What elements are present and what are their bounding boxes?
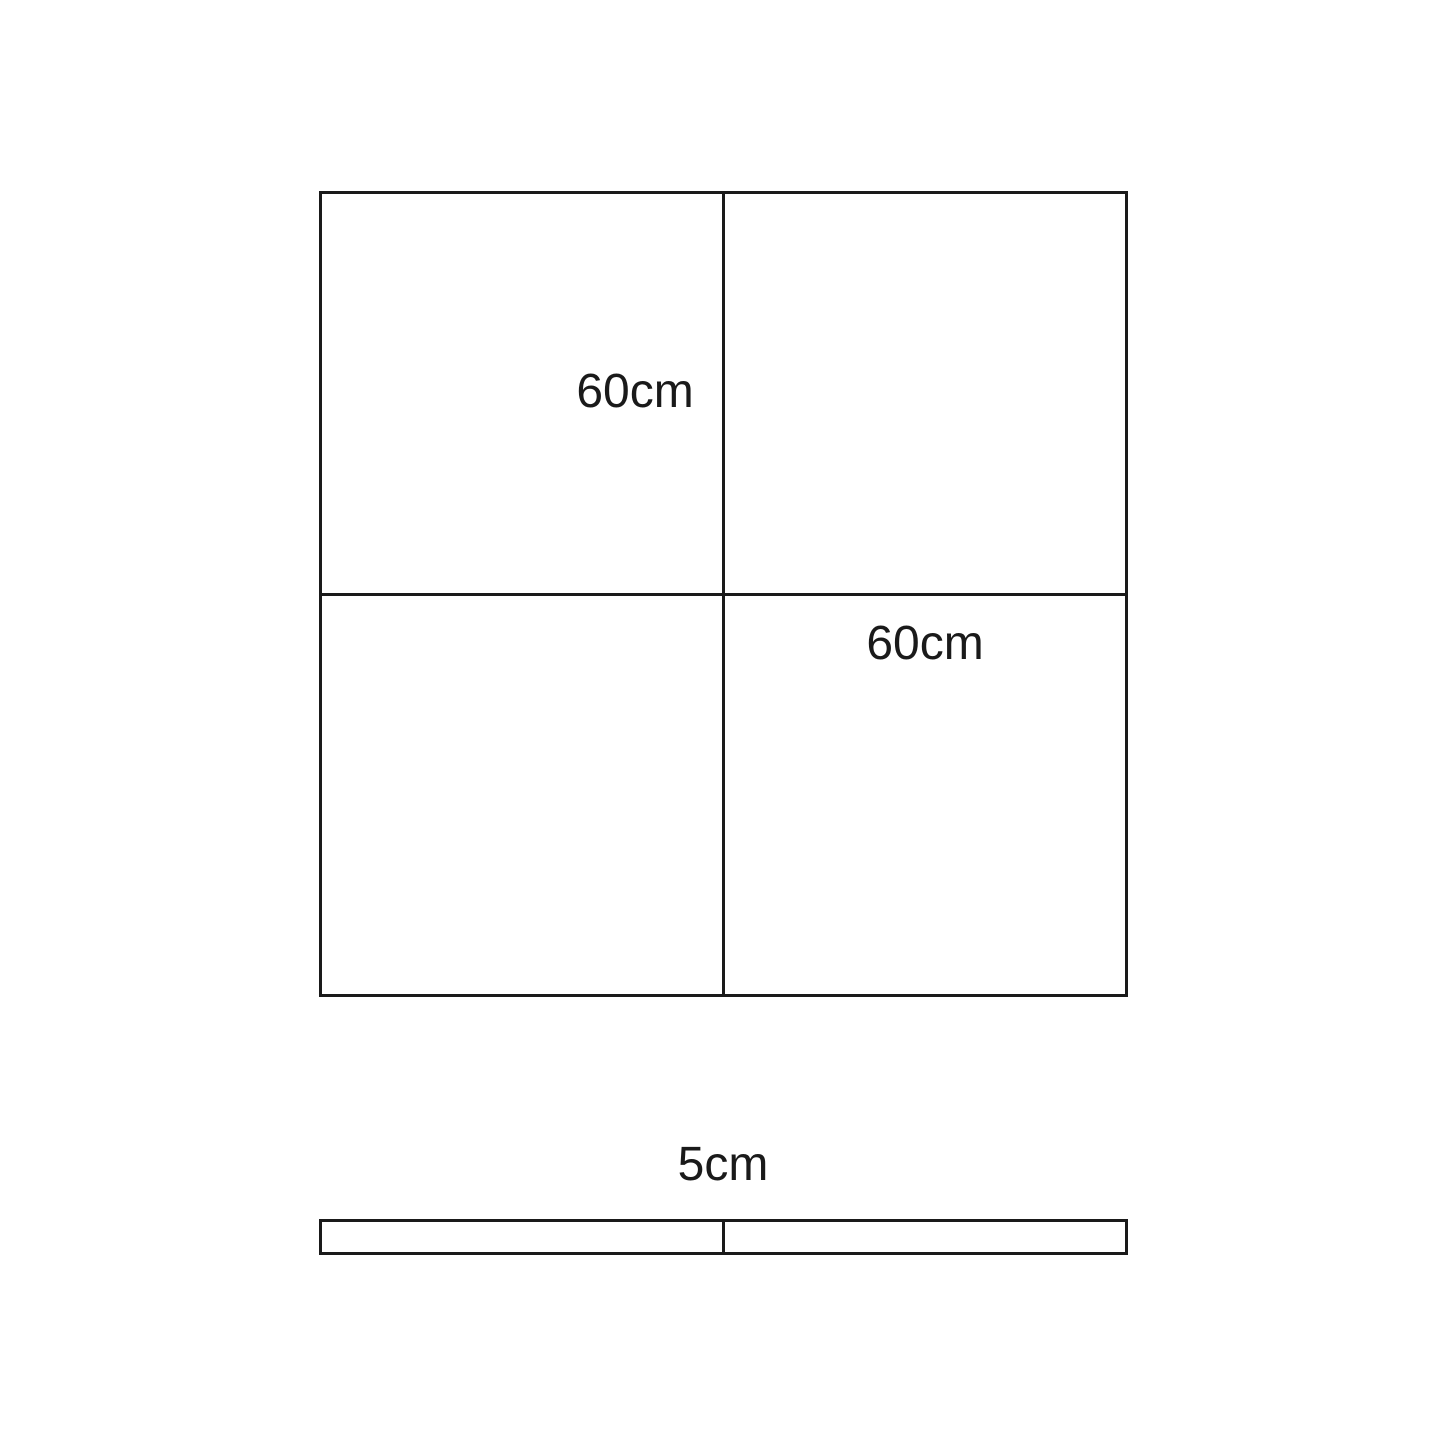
square-horizontal-divider-line (322, 593, 1125, 596)
dimension-label-bottom-right: 60cm (866, 620, 983, 668)
square-tiles-outline: 60cm 60cm (319, 191, 1128, 997)
thin-bar-outline (319, 1219, 1128, 1255)
dimension-label-top-left: 60cm (576, 368, 693, 416)
dimension-label-bar: 5cm (678, 1141, 769, 1189)
diagram-canvas: 60cm 60cm 5cm (0, 0, 1445, 1445)
bar-vertical-divider-line (722, 1222, 725, 1252)
